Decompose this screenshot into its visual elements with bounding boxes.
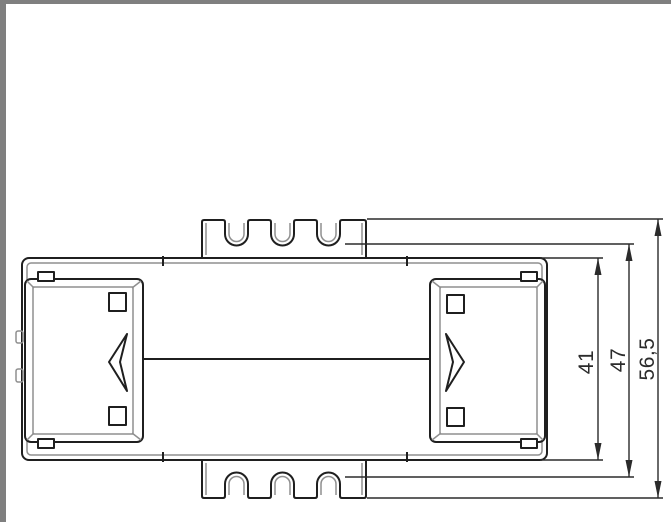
din-clip-right [430,272,545,448]
dimension-47: 47 [607,244,633,477]
comb-slot-inner [229,477,244,495]
dimension-56-5: 56,5 [636,219,662,498]
dimension-label-47: 47 [607,348,630,372]
comb-slot-inner [275,477,290,495]
technical-drawing-canvas: 41 47 56,5 [0,0,671,522]
dimension-arrow-down-icon [626,460,633,477]
dimension-arrow-down-icon [655,481,662,498]
clip-tab [521,272,537,281]
din-clip-left [25,272,143,448]
comb-slot-inner [275,223,290,242]
comb-bottom-outline [202,460,366,498]
comb-slot-inner [321,223,336,242]
terminal-comb-bottom [202,460,366,498]
dimension-label-56-5: 56,5 [636,338,659,381]
latch-square [447,295,464,313]
clip-tab [521,439,537,448]
latch-square [447,408,464,426]
latch-square [109,407,126,425]
dimension-arrow-up-icon [655,219,662,236]
dimension-arrow-up-icon [626,244,633,261]
comb-slot-inner [229,223,244,242]
clip-tab [38,272,54,281]
dimension-arrow-down-icon [595,443,602,460]
comb-top-outline [202,220,366,258]
terminal-comb-top [202,220,366,258]
comb-slot-inner [321,477,336,495]
dimension-arrow-up-icon [595,258,602,275]
clip-tab [38,439,54,448]
dimension-label-41: 41 [575,350,598,374]
latch-square [109,293,126,311]
dimension-41: 41 [575,258,602,460]
datasheet-drawing-page: 41 47 56,5 [0,0,671,522]
